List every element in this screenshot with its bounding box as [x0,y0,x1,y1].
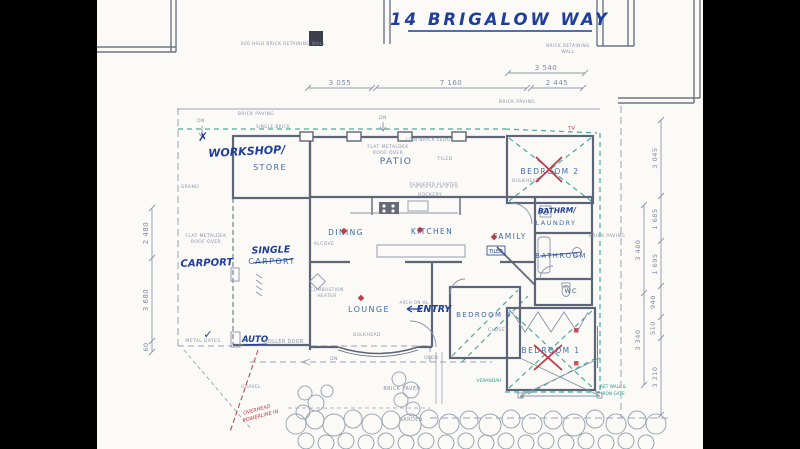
dim-right-inner-2: 3 340 [634,329,642,350]
note-verandah: VERANDAH [476,378,501,384]
note-planter: RENDERED PLANTER [410,182,458,187]
floor-plan-scan: 14 BRIGALOW WAY [0,0,800,449]
dim-right-outer-5: 510 [649,321,657,335]
note-flat-roof-patio-2: ROOF OVER [373,150,403,156]
note-brick-paving-2: BRICK PAVING [238,111,274,117]
dim-left-1: 2 480 [142,222,150,245]
note-combustion-2: HEATER [317,293,336,299]
label-laundry: LAUNDRY [536,219,577,227]
note-low-ledge: LOW BRICK LEDGE [406,137,454,143]
dim-left-3: 60 [142,342,150,351]
note-alcove: ALCOVE [314,241,335,247]
dim-left-2: 3 680 [142,289,150,312]
note-arch: ARCH ON HL [399,300,428,305]
note-retaining-right-1: BRICK RETAINING [546,43,590,49]
note-dn-2: DN [379,115,387,121]
label-patio: PATIO [380,157,413,167]
note-flat-roof-carport-1: FLAT METALDEK [185,233,227,239]
red-square-2 [574,361,579,366]
note-single-brick: SINGLE BRICK [256,124,290,129]
paper-background [0,0,800,449]
note-brick-paved: BRICK PAVED [383,386,420,392]
note-grano: GRANO [181,184,199,190]
title-block: 14 BRIGALOW WAY [390,10,610,31]
dim-right-outer-4: 940 [649,295,657,309]
note-gate-2: IRON GATE [601,391,625,397]
cross-mark-icon: ✗ [198,130,208,144]
label-tiled-family: TILED [488,249,503,255]
note-metal-gates: METAL GATES [185,338,220,344]
note-tiled-patio: TILED [437,156,453,162]
label-carport-handwritten: CARPORT [180,257,234,270]
note-dn-3: DN [330,356,338,362]
dim-right-inner-1: 3 480 [634,239,642,260]
note-retaining-top: 600 HIGH BRICK RETAINING WALL [241,41,326,47]
note-bulkhead-lounge: BULKHEAD [353,332,381,338]
label-entry-handwritten: ENTRY [417,304,452,315]
note-open: OPEN [424,355,438,361]
floor-plan-svg: 14 BRIGALOW WAY [0,0,800,449]
note-combustion-1: COMBUSTION [310,287,343,293]
label-single-handwritten: SINGLE [251,244,291,256]
label-family: FAMILY [493,232,527,241]
dim-right-outer-2: 1 685 [651,208,659,229]
dim-top-4: 2 445 [546,79,569,87]
note-dn-1: DN [197,118,205,124]
label-dining: DINING [328,228,364,237]
dim-right-outer-3: 1 695 [651,253,659,274]
note-brick-paving-1: BRICK PAVING [499,99,535,105]
dim-right-outer-6: 3 210 [651,366,659,387]
dim-right-outer-1: 3 045 [651,147,659,168]
note-flat-roof-patio-1: FLAT METALDEK [367,144,409,150]
note-roller-door: ROLLER DOOR [264,339,304,345]
note-closet: CLOSET [488,327,508,333]
label-bathrm-handwritten: BATHRM/ [538,205,578,215]
note-gravel: GRAVEL [241,384,261,390]
dim-top-3: 3 540 [535,64,558,72]
left-letterbox-bar [0,0,97,449]
label-wc: WC [565,287,578,295]
note-retaining-right-2: WALL [561,49,575,55]
note-rockery: ROCKERY [418,192,442,198]
note-gate-1: RET WALL & [600,384,627,390]
label-bedroom3: BEDROOM 3 [456,311,512,319]
dim-top-1: 3 055 [329,79,352,87]
right-letterbox-bar [703,0,800,449]
red-square-1 [574,328,579,333]
dim-top-2: 7 160 [440,79,463,87]
label-kitchen: KITCHEN [411,227,453,236]
note-flat-roof-carport-2: ROOF OVER [191,239,221,245]
note-brick-paving-3: BRICK PAVING [589,233,625,239]
label-lounge: LOUNGE [348,305,390,314]
label-store: STORE [253,163,287,172]
page-title: 14 BRIGALOW WAY [390,10,610,29]
